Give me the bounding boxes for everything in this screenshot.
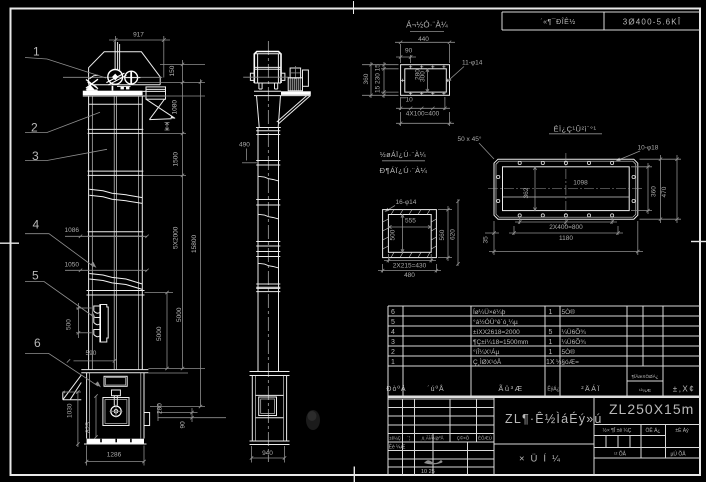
svg-text:µÚ ÕÅ: µÚ ÕÅ	[670, 451, 686, 458]
svg-text:50 x 45°: 50 x 45°	[458, 135, 482, 143]
svg-text:4: 4	[391, 329, 395, 336]
svg-text:ÊýÁ¿: ÊýÁ¿	[547, 385, 559, 393]
svg-text:16-φ14: 16-φ14	[396, 199, 417, 206]
svg-text:¹²¼Æ: ¹²¼Æ	[639, 388, 651, 394]
svg-text:5Ò®: 5Ò®	[562, 307, 576, 316]
svg-text:825: 825	[85, 422, 92, 433]
svg-text:½øÁÏ¿Ú·¨À¼: ½øÁÏ¿Ú·¨À¼	[380, 150, 426, 159]
svg-text:470: 470	[661, 186, 668, 197]
svg-text:4X100=400: 4X100=400	[406, 111, 440, 118]
svg-text:Ð¶ÁÏ¿Ú·¨À¼: Ð¶ÁÏ¿Ú·¨À¼	[380, 166, 428, 175]
svg-text:5: 5	[32, 269, 39, 283]
svg-text:1050: 1050	[65, 262, 80, 269]
svg-text:¼Ü6Õ¾: ¼Ü6Õ¾	[562, 327, 587, 336]
svg-text:ÉÏ¿Ç¹Û²ì´°¹: ÉÏ¿Ç¹Û²ì´°¹	[553, 125, 596, 134]
svg-text:15 230 15: 15 230 15	[375, 64, 382, 93]
svg-text:Ç¸ÌØX¹óÅ: Ç¸ÌØX¹óÅ	[473, 357, 502, 366]
svg-text:´«¶¯ÐÎÊ½: ´«¶¯ÐÎÊ½	[540, 17, 575, 26]
svg-text:1030: 1030	[67, 403, 74, 418]
svg-text:620: 620	[450, 229, 457, 240]
svg-text:1: 1	[391, 359, 395, 366]
svg-text:1500: 1500	[173, 152, 180, 167]
svg-text:1X: 1X	[546, 359, 555, 366]
svg-text:2: 2	[391, 349, 395, 356]
svg-text:´úºÅ: ´úºÅ	[427, 384, 444, 393]
svg-text:440: 440	[418, 36, 429, 43]
svg-text:±È Àý: ±È Àý	[675, 427, 689, 434]
svg-text:500: 500	[390, 229, 397, 240]
svg-text:¼Ü6Õ¾: ¼Ü6Õ¾	[562, 337, 587, 346]
svg-text:ÈÕÆÚ: ÈÕÆÚ	[478, 436, 492, 441]
svg-text:Éè ¼Æ: Éè ¼Æ	[389, 444, 406, 451]
svg-text:1: 1	[549, 339, 553, 346]
svg-text:¶Ç±ì¼18=1500mm: ¶Ç±ì¼18=1500mm	[473, 339, 528, 346]
svg-text:²ÄÁÏ: ²ÄÁÏ	[581, 384, 601, 393]
svg-text:10 25: 10 25	[421, 469, 435, 475]
svg-text:2X400=800: 2X400=800	[549, 224, 583, 231]
svg-text:555: 555	[405, 218, 416, 225]
svg-text:Ç©×Ö: Ç©×Ö	[457, 436, 470, 441]
svg-text:±ê¼Ç: ±ê¼Ç	[389, 436, 401, 441]
svg-text:´¦: ´¦	[407, 436, 410, 441]
svg-text:11-φ14: 11-φ14	[462, 60, 483, 67]
svg-text:1: 1	[549, 349, 553, 356]
svg-text:2X215=430: 2X215=430	[393, 263, 427, 270]
svg-text:560: 560	[439, 229, 446, 240]
svg-text:15800: 15800	[191, 235, 198, 253]
svg-text:±ìXX2618=2000: ±ìXX2618=2000	[473, 329, 520, 336]
svg-text:1086: 1086	[65, 227, 80, 234]
svg-text:¶ÏÃæXÖØÁ¿: ¶ÏÃæXÖØÁ¿	[632, 373, 659, 379]
svg-text:5000: 5000	[176, 307, 183, 322]
svg-text:ZL¶·Ê½ÌáÉý»ú: ZL¶·Ê½ÌáÉý»ú	[505, 411, 603, 426]
svg-text:3: 3	[391, 339, 395, 346]
svg-text:½× ¶Î ±ê ¼Ç: ½× ¶Î ±ê ¼Ç	[603, 427, 632, 434]
svg-text:362: 362	[523, 187, 530, 198]
svg-text:1: 1	[33, 45, 40, 59]
svg-text:¼§óÆ=: ¼§óÆ=	[556, 359, 579, 366]
svg-text:1080: 1080	[172, 100, 179, 115]
svg-text:90: 90	[405, 48, 413, 55]
svg-text:6: 6	[34, 336, 41, 350]
svg-text:Íø¼Ü×é¼þ: Íø¼Ü×é¼þ	[473, 307, 506, 316]
svg-text:×ÜÍ¼: ×ÜÍ¼	[519, 454, 566, 465]
svg-text:300: 300	[420, 71, 427, 82]
svg-text:10-φ18: 10-φ18	[638, 145, 659, 152]
svg-text:280: 280	[157, 403, 164, 414]
svg-text:ZL250X15m: ZL250X15m	[609, 401, 694, 417]
svg-text:500: 500	[66, 319, 73, 330]
svg-text:1180: 1180	[559, 235, 573, 242]
svg-text:¹² ÕÅ: ¹² ÕÅ	[614, 451, 627, 458]
svg-text:6: 6	[391, 309, 395, 316]
svg-text:35: 35	[483, 236, 490, 244]
svg-text:1: 1	[549, 309, 553, 316]
svg-text:3Ø400-5.6KÎ: 3Ø400-5.6KÎ	[623, 18, 682, 27]
svg-text:10: 10	[406, 97, 414, 104]
svg-text:150: 150	[169, 65, 176, 76]
svg-text:5X2000: 5X2000	[173, 226, 180, 249]
svg-text:±,X¢: ±,X¢	[673, 385, 695, 394]
svg-text:360: 360	[651, 186, 658, 197]
svg-text:1286: 1286	[107, 452, 122, 459]
svg-text:917: 917	[133, 32, 144, 39]
svg-text:480: 480	[404, 272, 415, 279]
svg-text:360: 360	[363, 73, 370, 84]
svg-text:940: 940	[262, 450, 273, 457]
svg-text:ÖÊ Á¿: ÖÊ Á¿	[645, 426, 660, 434]
svg-text:1098: 1098	[573, 180, 588, 187]
svg-text:4: 4	[33, 218, 40, 232]
svg-text:Á¬½Ó·¨À¼: Á¬½Ó·¨À¼	[406, 21, 448, 30]
svg-text:490: 490	[239, 142, 250, 149]
svg-text:5Ò®: 5Ò®	[562, 347, 576, 356]
svg-text:°á½ÓÜ°ê´ó¸¼µ: °á½ÓÜ°ê´ó¸¼µ	[473, 317, 518, 326]
svg-text:ÐòºÅ: ÐòºÅ	[386, 384, 406, 393]
svg-text:°ìÎ¼X¹Áµ: °ìÎ¼X¹Áµ	[473, 347, 499, 356]
svg-text:5: 5	[391, 319, 395, 326]
svg-text:¸ü¸ÄÎÄ¼þºÅ: ¸ü¸ÄÎÄ¼þºÅ	[420, 436, 443, 441]
svg-text:5000: 5000	[156, 326, 163, 341]
svg-text:590: 590	[86, 350, 97, 357]
svg-text:Ãû³Æ: Ãû³Æ	[498, 384, 523, 393]
svg-text:5: 5	[549, 329, 553, 336]
svg-text:90: 90	[180, 421, 187, 429]
